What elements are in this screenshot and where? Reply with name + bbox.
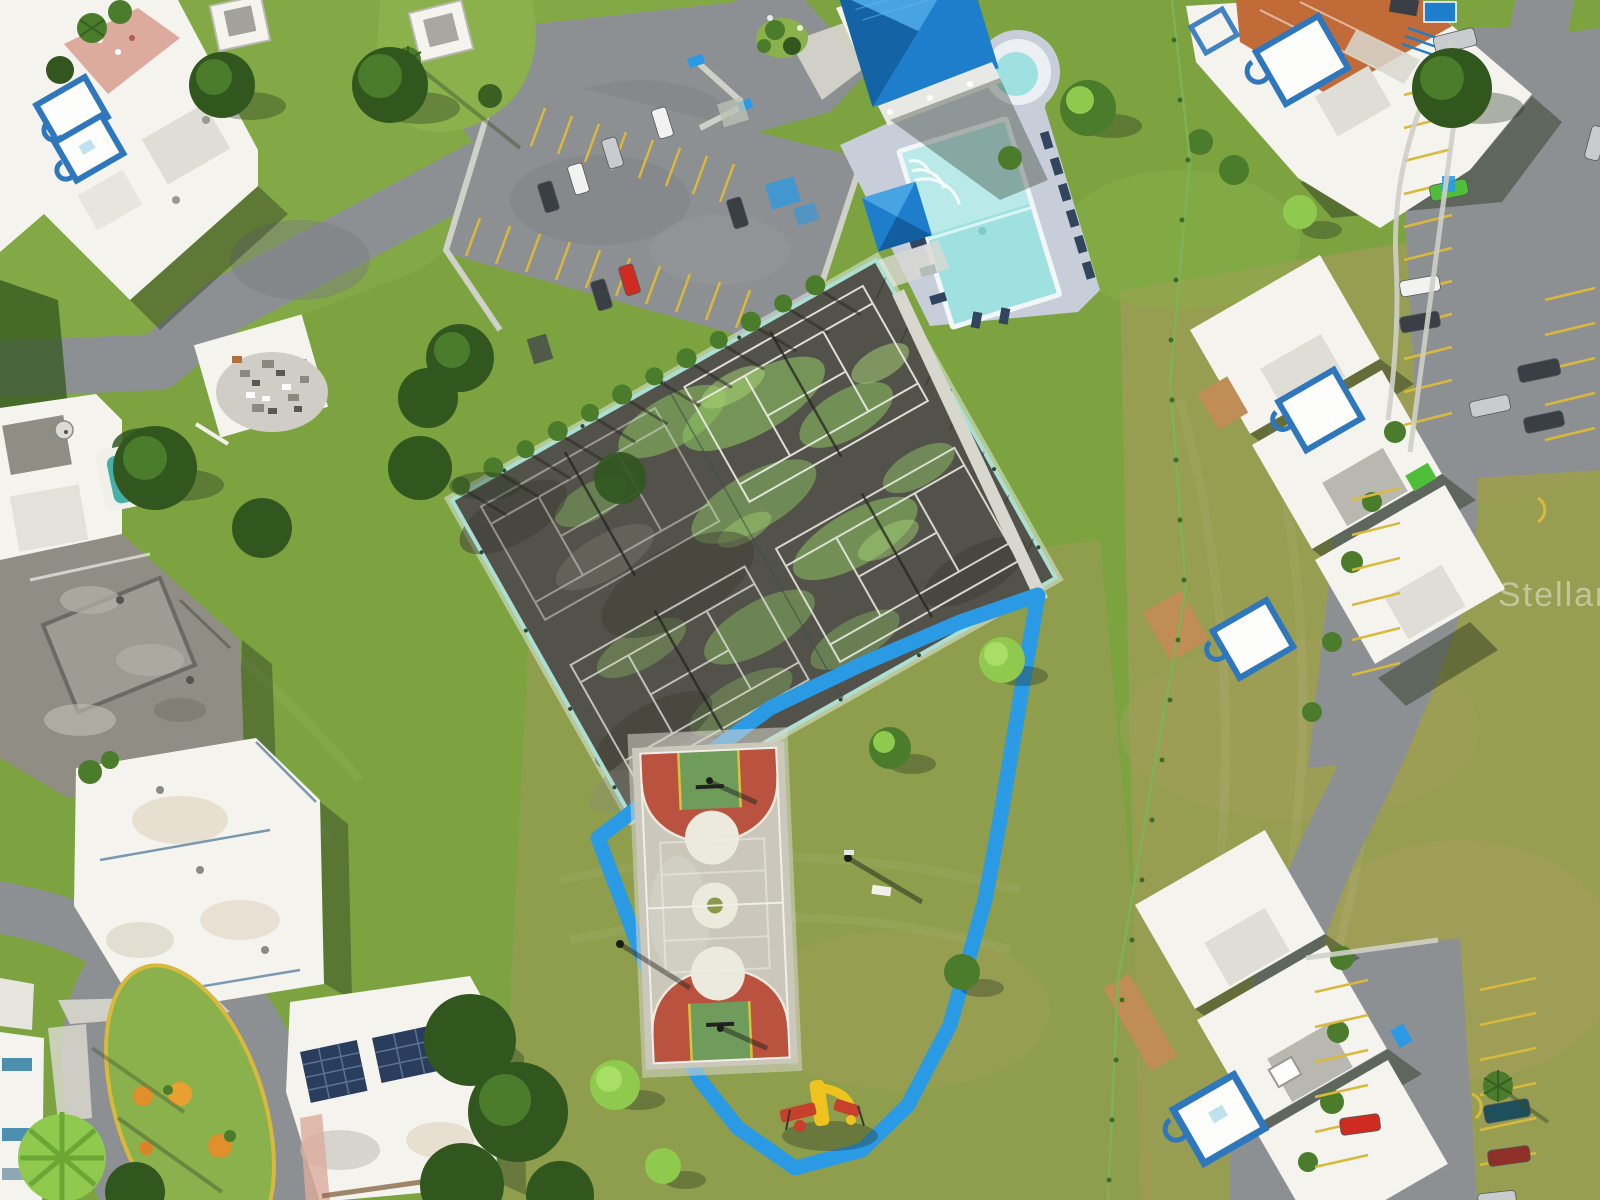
aerial-scene: Stellar MLS: [0, 0, 1600, 1200]
satellite-dish: [55, 421, 73, 439]
aerial-photo-community: Stellar MLS: [0, 0, 1600, 1200]
basketball-court: [627, 727, 802, 1078]
stellar-mls-watermark: Stellar MLS: [1498, 576, 1600, 614]
